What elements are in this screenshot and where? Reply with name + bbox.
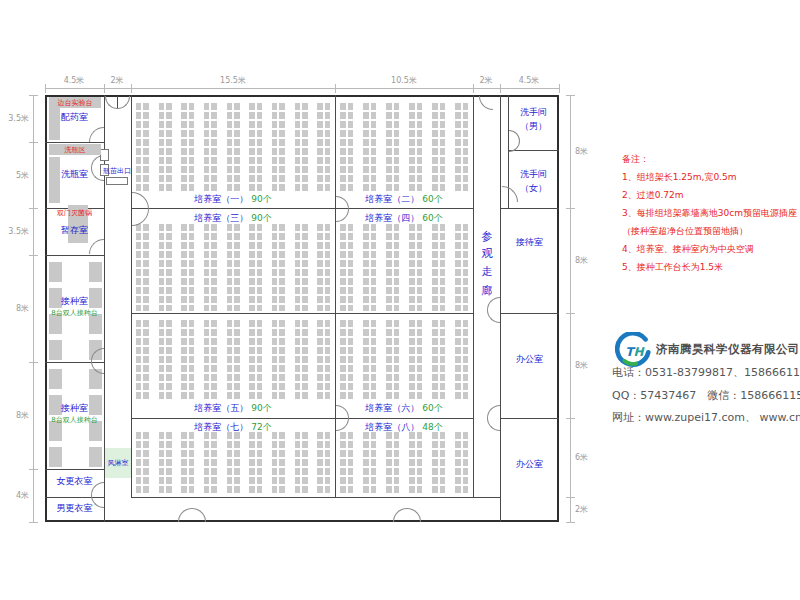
culture-rack-column [159,103,172,192]
note-item: 3、每排组培架靠墙离地30cm预留电源插座 [622,207,800,220]
dim-right-4: 2米 [575,504,588,515]
culture-room-count: 90个 [251,193,271,206]
dimension-tick [29,522,38,523]
dim-top-3: 10.5米 [382,75,426,86]
culture-rack-column [409,103,422,192]
culture-rack-column [317,432,330,495]
culture-room-label-6: 培养室（六） 60个 [335,402,473,414]
wash-area-label: 洗瓶区 [49,144,101,155]
culture-rack-column [204,320,217,400]
culture-rack-column [386,432,399,495]
culture-rack-column [317,320,330,400]
culture-rack-column [340,224,353,311]
wall-line [45,255,104,256]
culture-rack-column [136,224,149,311]
wall-line [131,497,500,498]
room-label-female-changing: 女更衣室 [45,475,104,487]
inoculation-workstation [49,340,62,360]
culture-rack-column [455,320,468,400]
culture-room-count: 72个 [251,421,271,434]
dim-right-1: 8米 [575,255,588,266]
inoculation-workstation [49,369,62,389]
culture-room-name: 培养室（一） [194,193,248,206]
culture-rack-column [409,432,422,495]
culture-room-count: 90个 [251,212,271,225]
dimension-tick [29,208,38,209]
inoculation-workstation [89,262,102,282]
room-sublabel-inoculation-1: 8台双人接种台 [45,308,104,318]
culture-room-name: 培养室（七） [194,421,248,434]
note-item: 4、培养室、接种室内为中央空调 [622,243,800,256]
culture-room-label-3: 培养室（三） 90个 [131,212,335,224]
dimension-tick [29,469,38,470]
culture-rack-column [295,224,308,311]
wall-line [500,313,559,314]
dimension-tick [29,362,38,363]
washroom-male-label: 洗手间 （男） [508,103,559,137]
pass-window [100,149,109,161]
culture-room-label-4: 培养室（四） 60个 [335,212,473,224]
culture-rack-column [272,432,285,495]
dimension-tick [566,497,575,498]
culture-rack-column [363,320,376,400]
wall-line [45,469,104,470]
culture-room-label-8: 培养室（八） 48个 [335,421,473,433]
culture-room-label-1: 培养室（一） 90个 [131,193,335,205]
notes-title: 备注： [622,153,800,166]
dimension-line-left [33,95,34,522]
culture-room-count: 60个 [422,402,442,415]
culture-rack-column [455,432,468,495]
culture-rack-column [386,320,399,400]
dim-top-1: 2米 [95,75,139,86]
wall-line [45,142,104,143]
culture-rack-column [455,224,468,311]
inoculation-workstation [49,262,62,282]
bench-counter [49,157,60,203]
culture-rack-column [409,224,422,311]
wall-line [500,208,559,209]
culture-rack-column [136,432,149,495]
culture-rack-column [159,320,172,400]
culture-rack-column [204,224,217,311]
note-item: 1、组培架长1.25m,宽0.5m [622,171,800,184]
culture-rack-column [227,224,240,311]
culture-rack-column [181,224,194,311]
dimension-tick [559,84,560,93]
room-label-dispensing: 配药室 [45,111,104,123]
dimension-tick [566,95,575,96]
culture-room-name: 培养室（五） [194,402,248,415]
dim-top-0: 4.5米 [52,75,96,86]
culture-rack-column [432,432,445,495]
dim-top-2: 15.5米 [211,75,255,86]
office-label-1: 办公室 [500,353,559,365]
washroom-gender: （男） [520,120,547,134]
culture-room-label-2: 培养室（二） 60个 [335,193,473,205]
culture-rack-column [272,224,285,311]
reception-label: 接待室 [500,236,559,248]
air-shower-label: 风淋室 [108,458,129,468]
dimension-tick [566,313,575,314]
culture-rack-column [272,103,285,192]
culture-room-name: 培养室（四） [365,212,419,225]
dim-top-4: 2米 [464,75,508,86]
air-shower-room: 风淋室 [105,448,131,478]
dimension-tick [29,142,38,143]
wall-line [131,208,473,209]
culture-rack-column [340,432,353,495]
room-label-bottle-washing: 洗瓶室 [45,168,104,180]
culture-rack-column [272,320,285,400]
inoculation-workstation [49,447,62,467]
culture-rack-column [363,224,376,311]
washroom-gender: （女） [520,182,547,196]
room-label-inoculation-2: 接种室 [45,402,104,414]
bottle-exit-label: 瓶苗出口 [103,166,131,175]
culture-room-count: 60个 [422,212,442,225]
culture-rack-column [386,224,399,311]
bench-label: 边台实验台 [49,97,101,108]
culture-room-label-7: 培养室（七） 72个 [131,421,335,433]
washroom-name: 洗手间 [520,106,547,120]
dimension-line-top [45,88,559,89]
company-website: 网址：www.zupei17.com、 www.cnhtkj.com [612,410,800,425]
room-sublabel-inoculation-2: 8台双人接种台 [45,415,104,425]
dim-right-2: 8米 [575,360,588,371]
pass-window [106,177,128,185]
culture-rack-column [409,320,422,400]
room-label-male-changing: 男更衣室 [45,502,104,514]
culture-rack-column [295,103,308,192]
culture-rack-column [363,103,376,192]
culture-rack-column [363,432,376,495]
dim-right-3: 6米 [575,452,588,463]
dim-right-0: 8米 [575,146,588,157]
note-item: 5、接种工作台长为1.5米 [622,261,800,274]
logo-letter-h: H [634,345,646,359]
culture-rack-column [432,103,445,192]
culture-rack-column [340,320,353,400]
dimension-tick [45,84,46,93]
dim-left-0: 3.5米 [5,113,29,124]
culture-room-count: 90个 [251,402,271,415]
culture-rack-column [249,103,262,192]
office-label-2: 办公室 [500,458,559,470]
culture-rack-column [386,103,399,192]
note-item: 2、过道0.72m [622,189,800,202]
culture-rack-column [136,320,149,400]
culture-rack-column [136,103,149,192]
culture-rack-column [181,320,194,400]
culture-room-name: 培养室（八） [365,421,419,434]
culture-rack-column [227,432,240,495]
wall-line [131,418,473,419]
dimension-tick [566,208,575,209]
culture-rack-column [317,103,330,192]
room-label-storage: 暂存室 [45,224,104,236]
culture-rack-column [181,103,194,192]
wall-line [131,313,473,314]
culture-rack-column [249,224,262,311]
dimension-tick [29,255,38,256]
culture-rack-column [204,103,217,192]
dim-left-5: 4米 [5,490,29,501]
company-name: 济南腾昊科学仪器有限公司 [656,342,800,357]
dim-left-3: 8米 [5,303,29,314]
wall-line [131,95,132,497]
culture-rack-column [159,224,172,311]
washroom-female-label: 洗手间 （女） [508,165,559,199]
culture-rack-column [249,320,262,400]
washroom-name: 洗手间 [520,168,547,182]
culture-rack-column [227,103,240,192]
gallery-label: 参观走廊 [478,221,494,361]
wall-line [473,95,474,497]
dimension-tick [566,522,575,523]
culture-rack-column [340,103,353,192]
culture-room-name: 培养室（六） [365,402,419,415]
note-item: （接种室超净台位置预留地插） [622,225,800,238]
culture-rack-column [204,432,217,495]
culture-rack-column [295,432,308,495]
dim-left-4: 8米 [5,410,29,421]
dimension-tick [335,84,336,93]
wall-line [500,418,559,419]
company-qq-wechat: QQ：57437467 微信：15866611552 [612,388,800,403]
dim-left-2: 3.5米 [5,226,29,237]
wall-line [335,95,336,497]
dimension-tick [566,418,575,419]
inoculation-workstation [89,447,102,467]
culture-rack-column [432,224,445,311]
culture-room-label-5: 培养室（五） 90个 [131,402,335,414]
culture-rack-column [455,103,468,192]
culture-rack-column [432,320,445,400]
culture-room-count: 48个 [422,421,442,434]
floorplan-canvas: 4.5米 2米 15.5米 10.5米 2米 4.5米 3.5米 5米 3.5米… [0,0,800,600]
culture-rack-column [317,224,330,311]
company-phone: 电话：0531-83799817、15866611552 [612,365,800,380]
culture-rack-column [159,432,172,495]
notes-block: 备注： 1、组培架长1.25m,宽0.5m 2、过道0.72m 3、每排组培架靠… [622,153,800,279]
room-label-inoculation-1: 接种室 [45,295,104,307]
dimension-tick [29,95,38,96]
dim-left-1: 5米 [5,170,29,181]
culture-rack-column [227,320,240,400]
culture-room-name: 培养室（三） [194,212,248,225]
culture-rack-column [249,432,262,495]
dimension-line-right [570,95,571,522]
sterilizer-label: 双门灭菌锅 [45,208,104,218]
culture-rack-column [295,320,308,400]
culture-rack-column [181,432,194,495]
dim-top-5: 4.5米 [507,75,551,86]
wall-line [508,150,559,151]
culture-room-name: 培养室（二） [365,193,419,206]
culture-room-count: 60个 [422,193,442,206]
